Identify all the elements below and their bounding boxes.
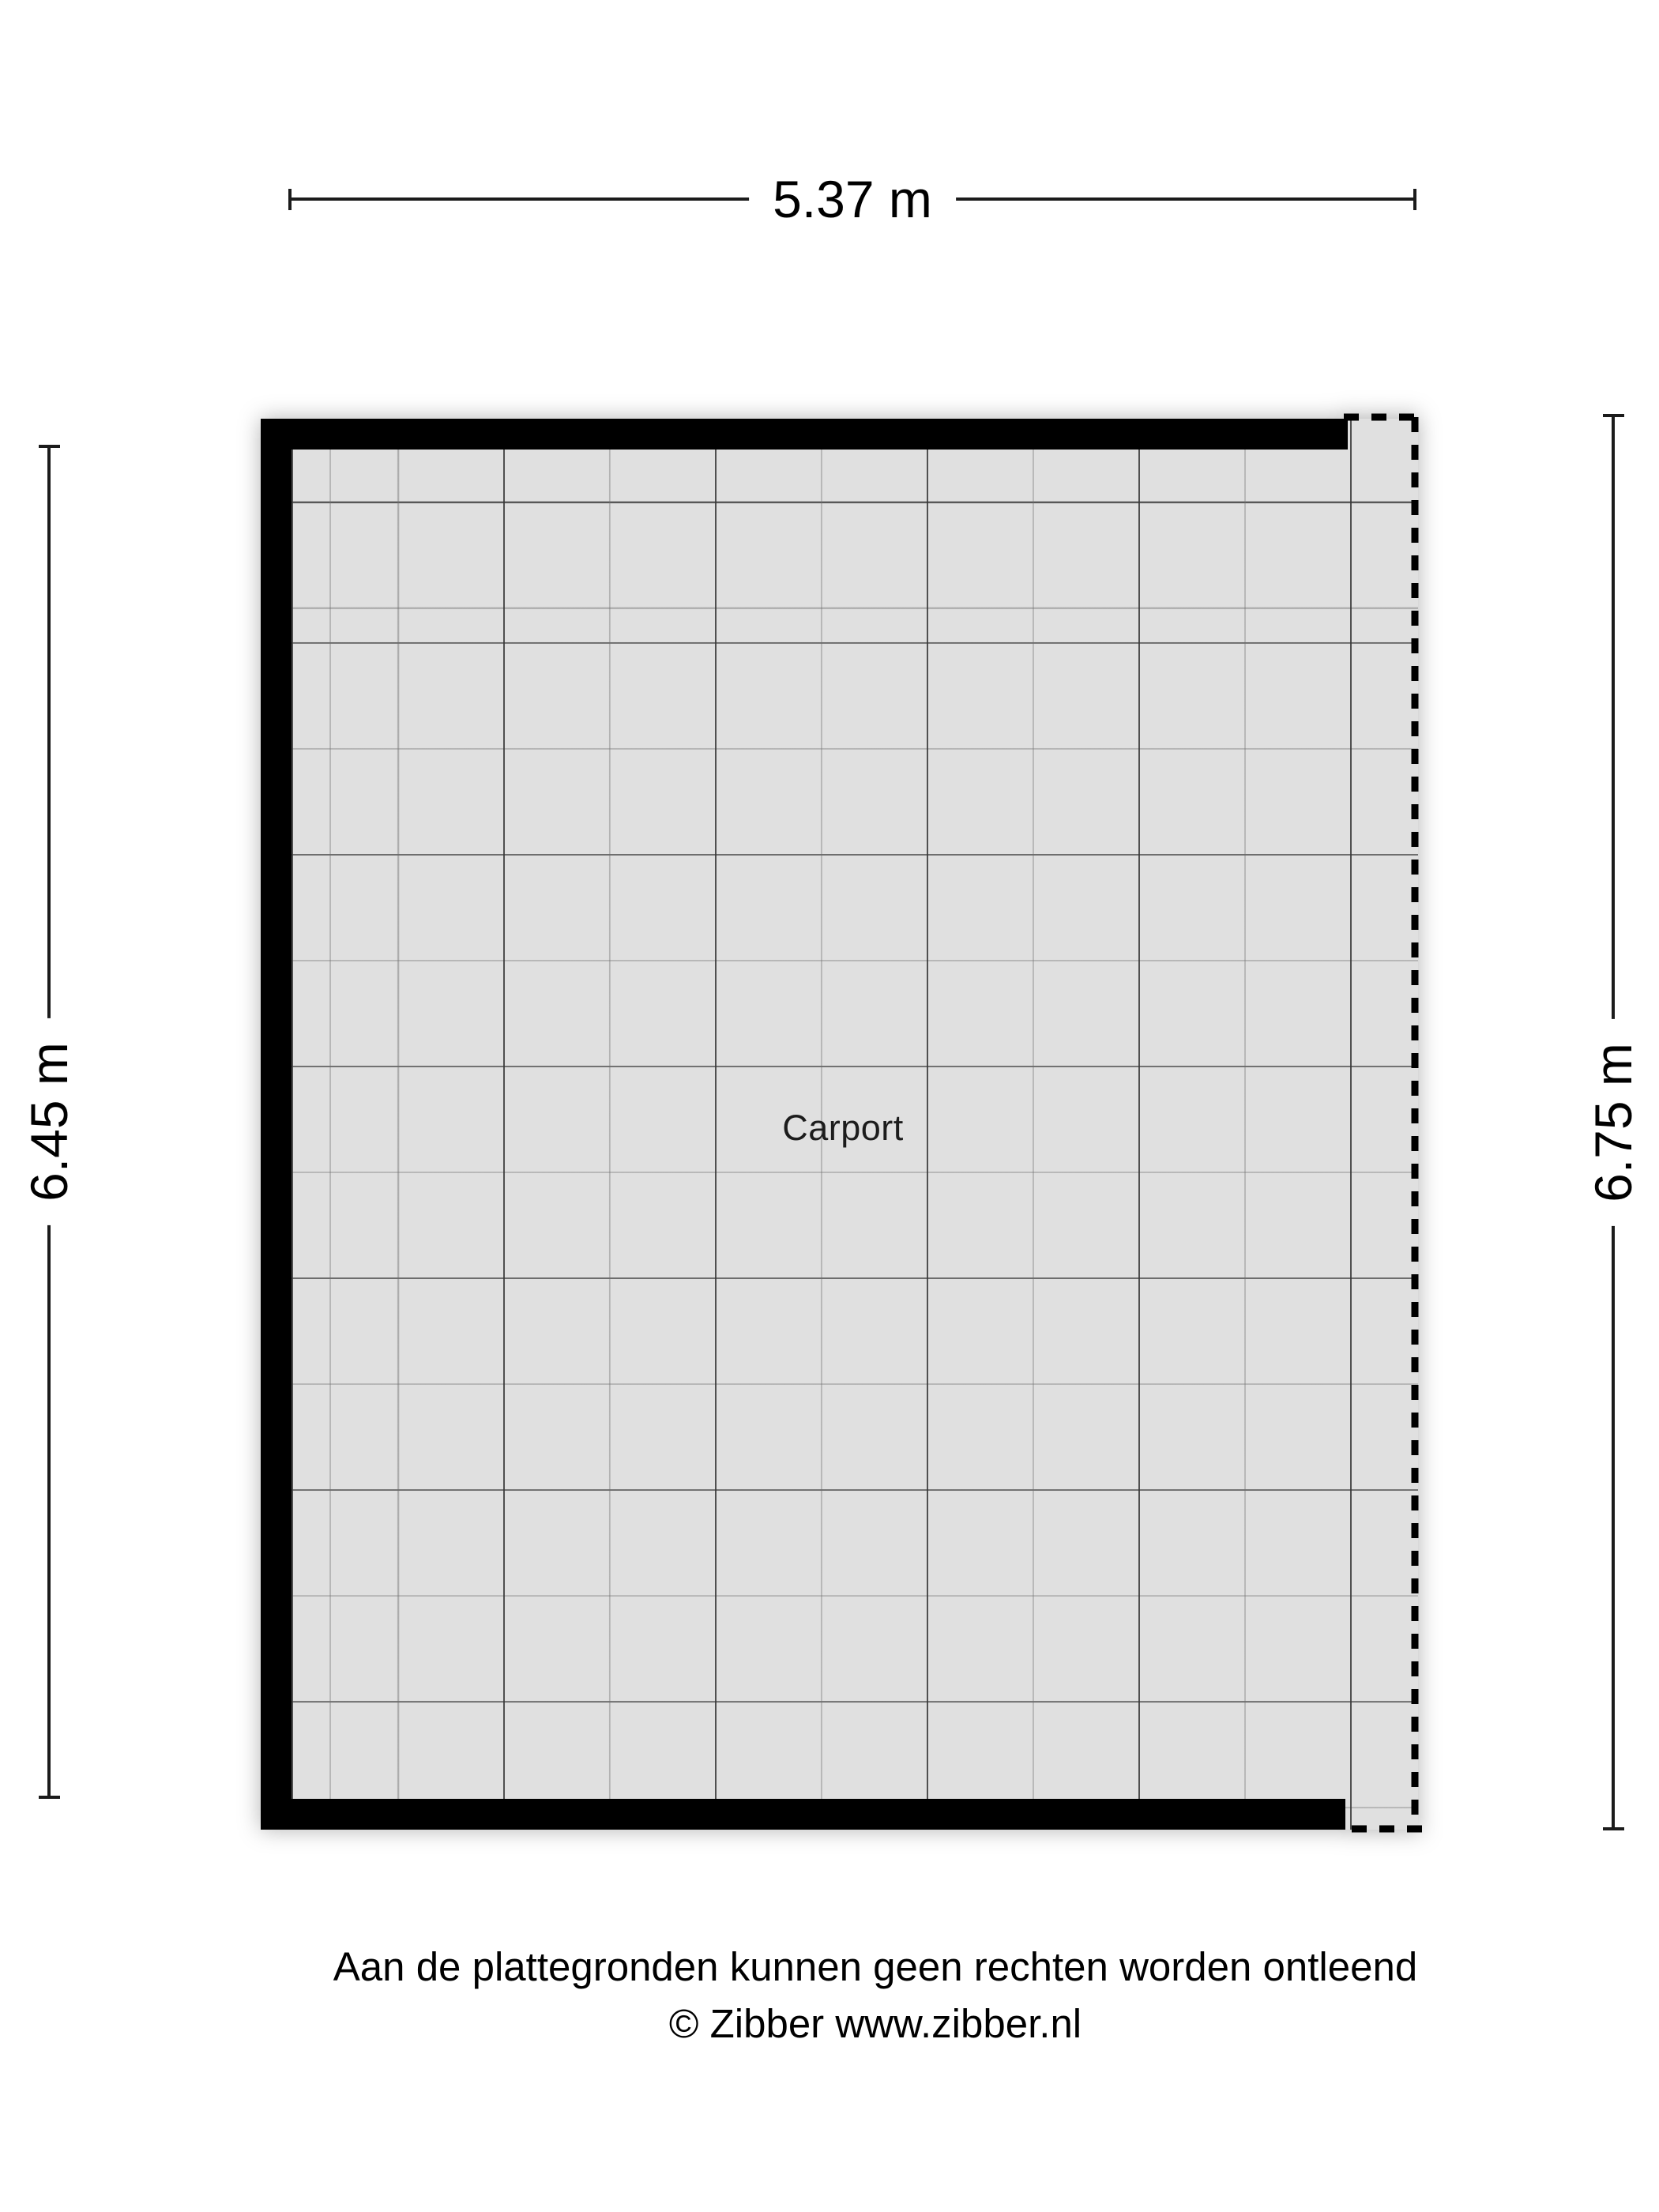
room-label: Carport xyxy=(782,1108,904,1149)
right-dimension-tick-top xyxy=(1603,414,1624,417)
left-dimension-label: 6.45 m xyxy=(21,1018,77,1225)
left-dimension-tick-top xyxy=(39,445,60,448)
floorplan-page: 5.37 m 6.45 m 6.75 m Carport Aan de plat… xyxy=(0,0,1659,2212)
top-dimension-tick-right xyxy=(1413,189,1416,210)
right-dimension-label: 6.75 m xyxy=(1586,1019,1641,1226)
top-dimension-label: 5.37 m xyxy=(749,171,956,227)
footer: Aan de plattegronden kunnen geen rechten… xyxy=(46,1939,1659,2052)
floor-plan: Carport xyxy=(261,419,1418,1830)
copyright-text: © Zibber www.zibber.nl xyxy=(46,1996,1659,2052)
disclaimer-text: Aan de plattegronden kunnen geen rechten… xyxy=(46,1939,1659,1996)
top-dimension-tick-left xyxy=(288,189,292,210)
left-dimension-tick-bottom xyxy=(39,1796,60,1799)
right-dimension: 6.75 m xyxy=(1596,415,1631,1830)
top-dimension: 5.37 m xyxy=(289,182,1416,216)
right-dimension-tick-bottom xyxy=(1603,1827,1624,1830)
left-dimension: 6.45 m xyxy=(32,446,66,1798)
